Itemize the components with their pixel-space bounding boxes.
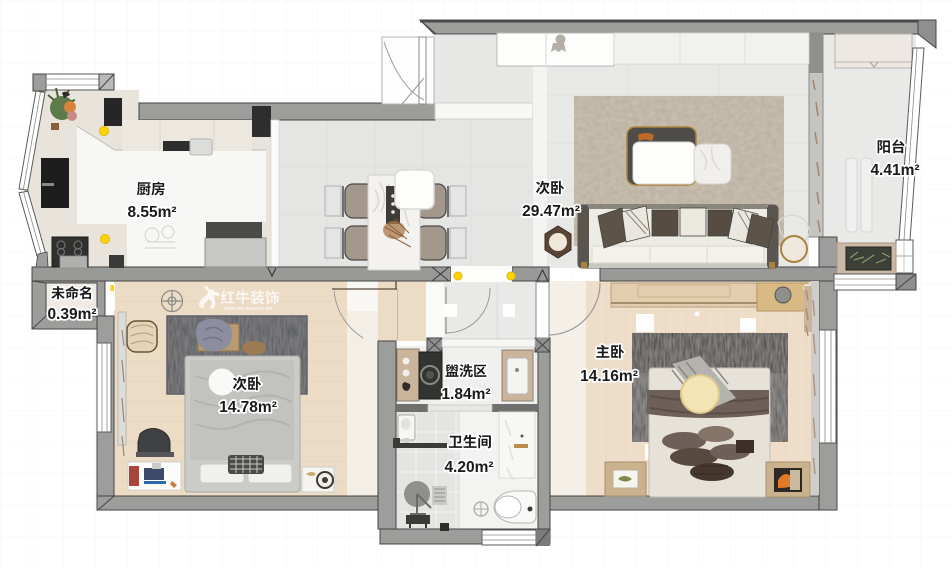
svg-text:HONG NIU ZHUANG SHI: HONG NIU ZHUANG SHI xyxy=(224,306,272,311)
svg-text:4.20m²: 4.20m² xyxy=(444,459,493,476)
svg-text:0.39m²: 0.39m² xyxy=(47,306,96,323)
svg-text:29.47m²: 29.47m² xyxy=(522,203,580,220)
svg-text:14.78m²: 14.78m² xyxy=(219,399,277,416)
svg-text:4.41m²: 4.41m² xyxy=(870,162,919,179)
svg-text:8.55m²: 8.55m² xyxy=(127,204,176,221)
svg-text:1.84m²: 1.84m² xyxy=(441,386,490,403)
svg-text:14.16m²: 14.16m² xyxy=(580,368,638,385)
